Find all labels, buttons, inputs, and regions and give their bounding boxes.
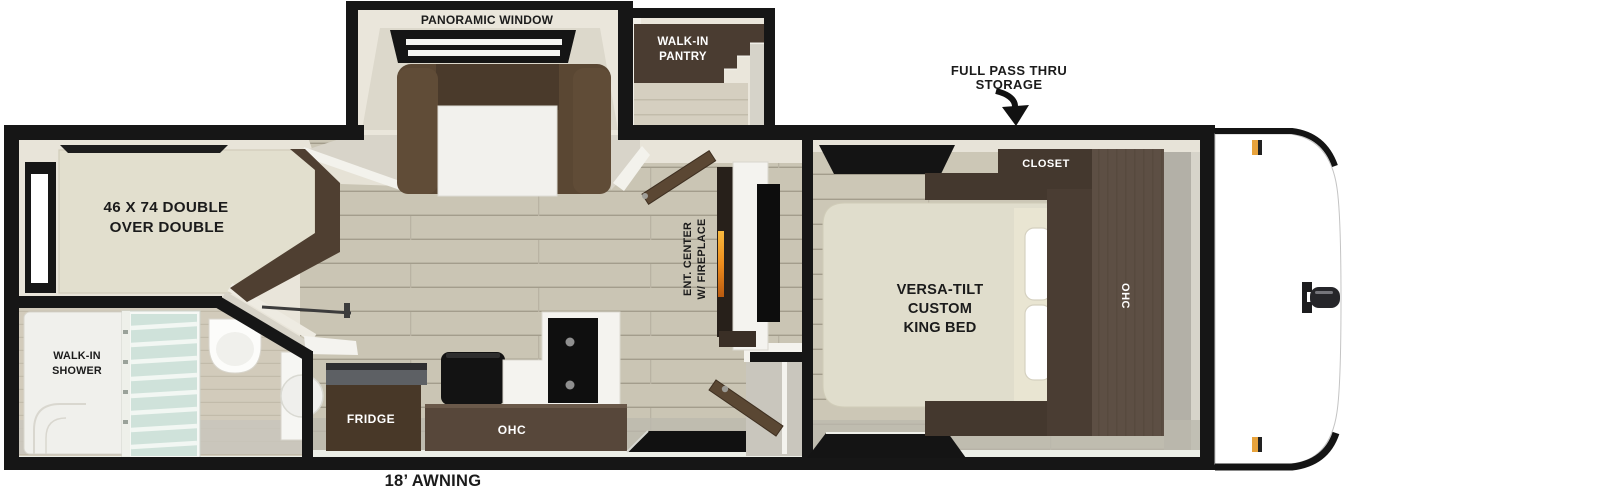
svg-text:WALK-IN: WALK-IN <box>53 350 101 362</box>
svg-text:W/ FIREPLACE: W/ FIREPLACE <box>696 219 708 300</box>
svg-text:SHOWER: SHOWER <box>52 365 102 377</box>
svg-text:FRIDGE: FRIDGE <box>347 412 395 426</box>
svg-text:46 X 74 DOUBLE: 46 X 74 DOUBLE <box>104 199 229 216</box>
svg-text:WALK-IN: WALK-IN <box>657 36 708 48</box>
svg-text:CUSTOM: CUSTOM <box>908 301 972 317</box>
svg-text:STORAGE: STORAGE <box>976 77 1043 92</box>
svg-text:PANORAMIC WINDOW: PANORAMIC WINDOW <box>421 13 554 27</box>
svg-text:PANTRY: PANTRY <box>659 51 707 63</box>
svg-text:OVER DOUBLE: OVER DOUBLE <box>110 219 225 236</box>
svg-text:18’ AWNING: 18’ AWNING <box>385 472 482 489</box>
svg-text:FULL PASS THRU: FULL PASS THRU <box>951 63 1067 78</box>
svg-text:OHC: OHC <box>1119 283 1131 309</box>
svg-text:OHC: OHC <box>498 423 526 437</box>
svg-text:ENT. CENTER: ENT. CENTER <box>682 222 694 296</box>
svg-text:CLOSET: CLOSET <box>1022 158 1070 170</box>
svg-text:KING BED: KING BED <box>904 320 977 336</box>
svg-text:VERSA-TILT: VERSA-TILT <box>897 282 984 298</box>
